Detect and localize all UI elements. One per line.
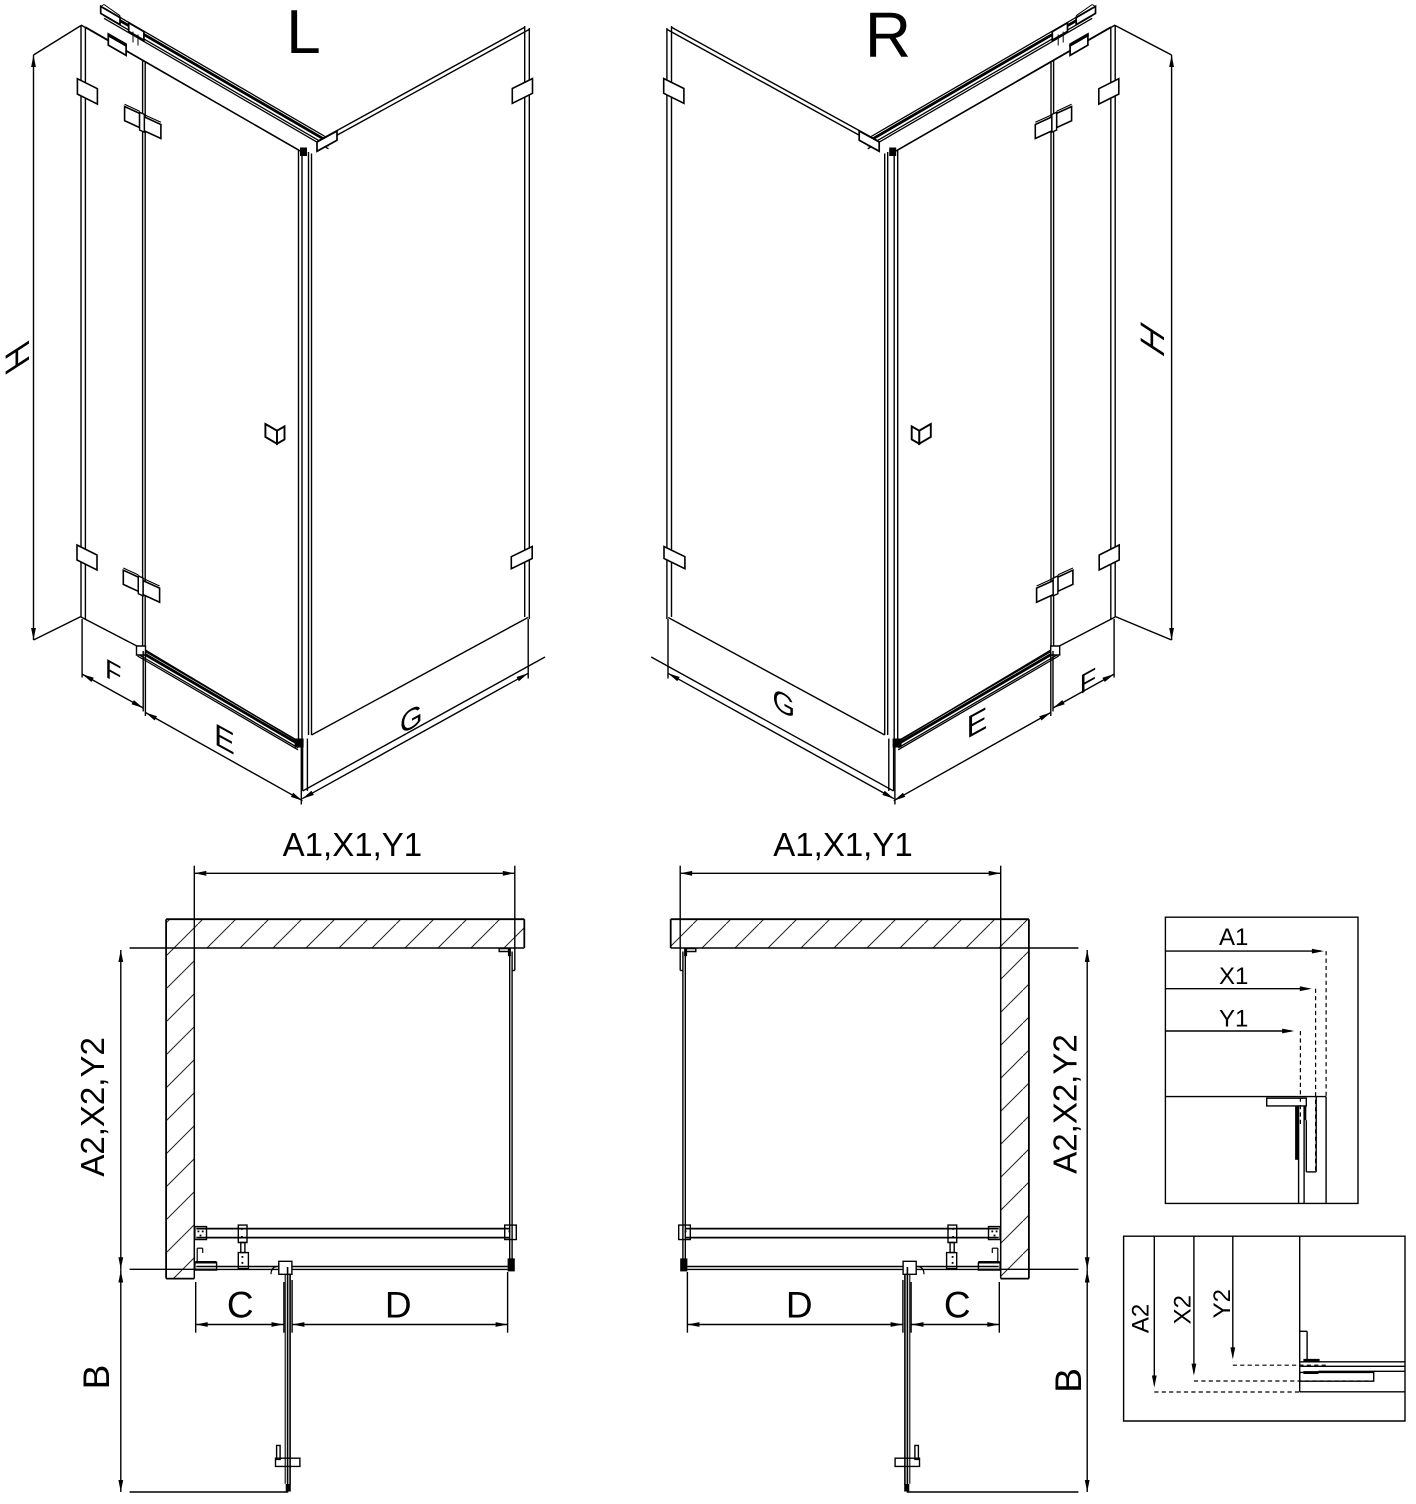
svg-text:C: C	[227, 1285, 254, 1326]
svg-text:B: B	[1048, 1368, 1089, 1393]
svg-text:A2: A2	[1128, 1304, 1155, 1333]
svg-text:C: C	[944, 1285, 971, 1326]
svg-text:A2,X2,Y2: A2,X2,Y2	[74, 1037, 111, 1176]
svg-text:A1,X1,Y1: A1,X1,Y1	[283, 826, 422, 863]
svg-text:B: B	[76, 1365, 117, 1390]
svg-text:A1,X1,Y1: A1,X1,Y1	[773, 826, 912, 863]
svg-text:D: D	[385, 1285, 412, 1326]
svg-text:A1: A1	[1219, 924, 1248, 951]
svg-text:D: D	[786, 1285, 813, 1326]
svg-text:R: R	[865, 0, 911, 71]
svg-text:X1: X1	[1219, 963, 1248, 990]
svg-text:X2: X2	[1170, 1295, 1197, 1324]
svg-text:A2,X2,Y2: A2,X2,Y2	[1047, 1034, 1084, 1173]
svg-text:Y2: Y2	[1209, 1289, 1236, 1318]
svg-text:L: L	[286, 0, 320, 67]
svg-text:Y1: Y1	[1219, 1006, 1248, 1033]
